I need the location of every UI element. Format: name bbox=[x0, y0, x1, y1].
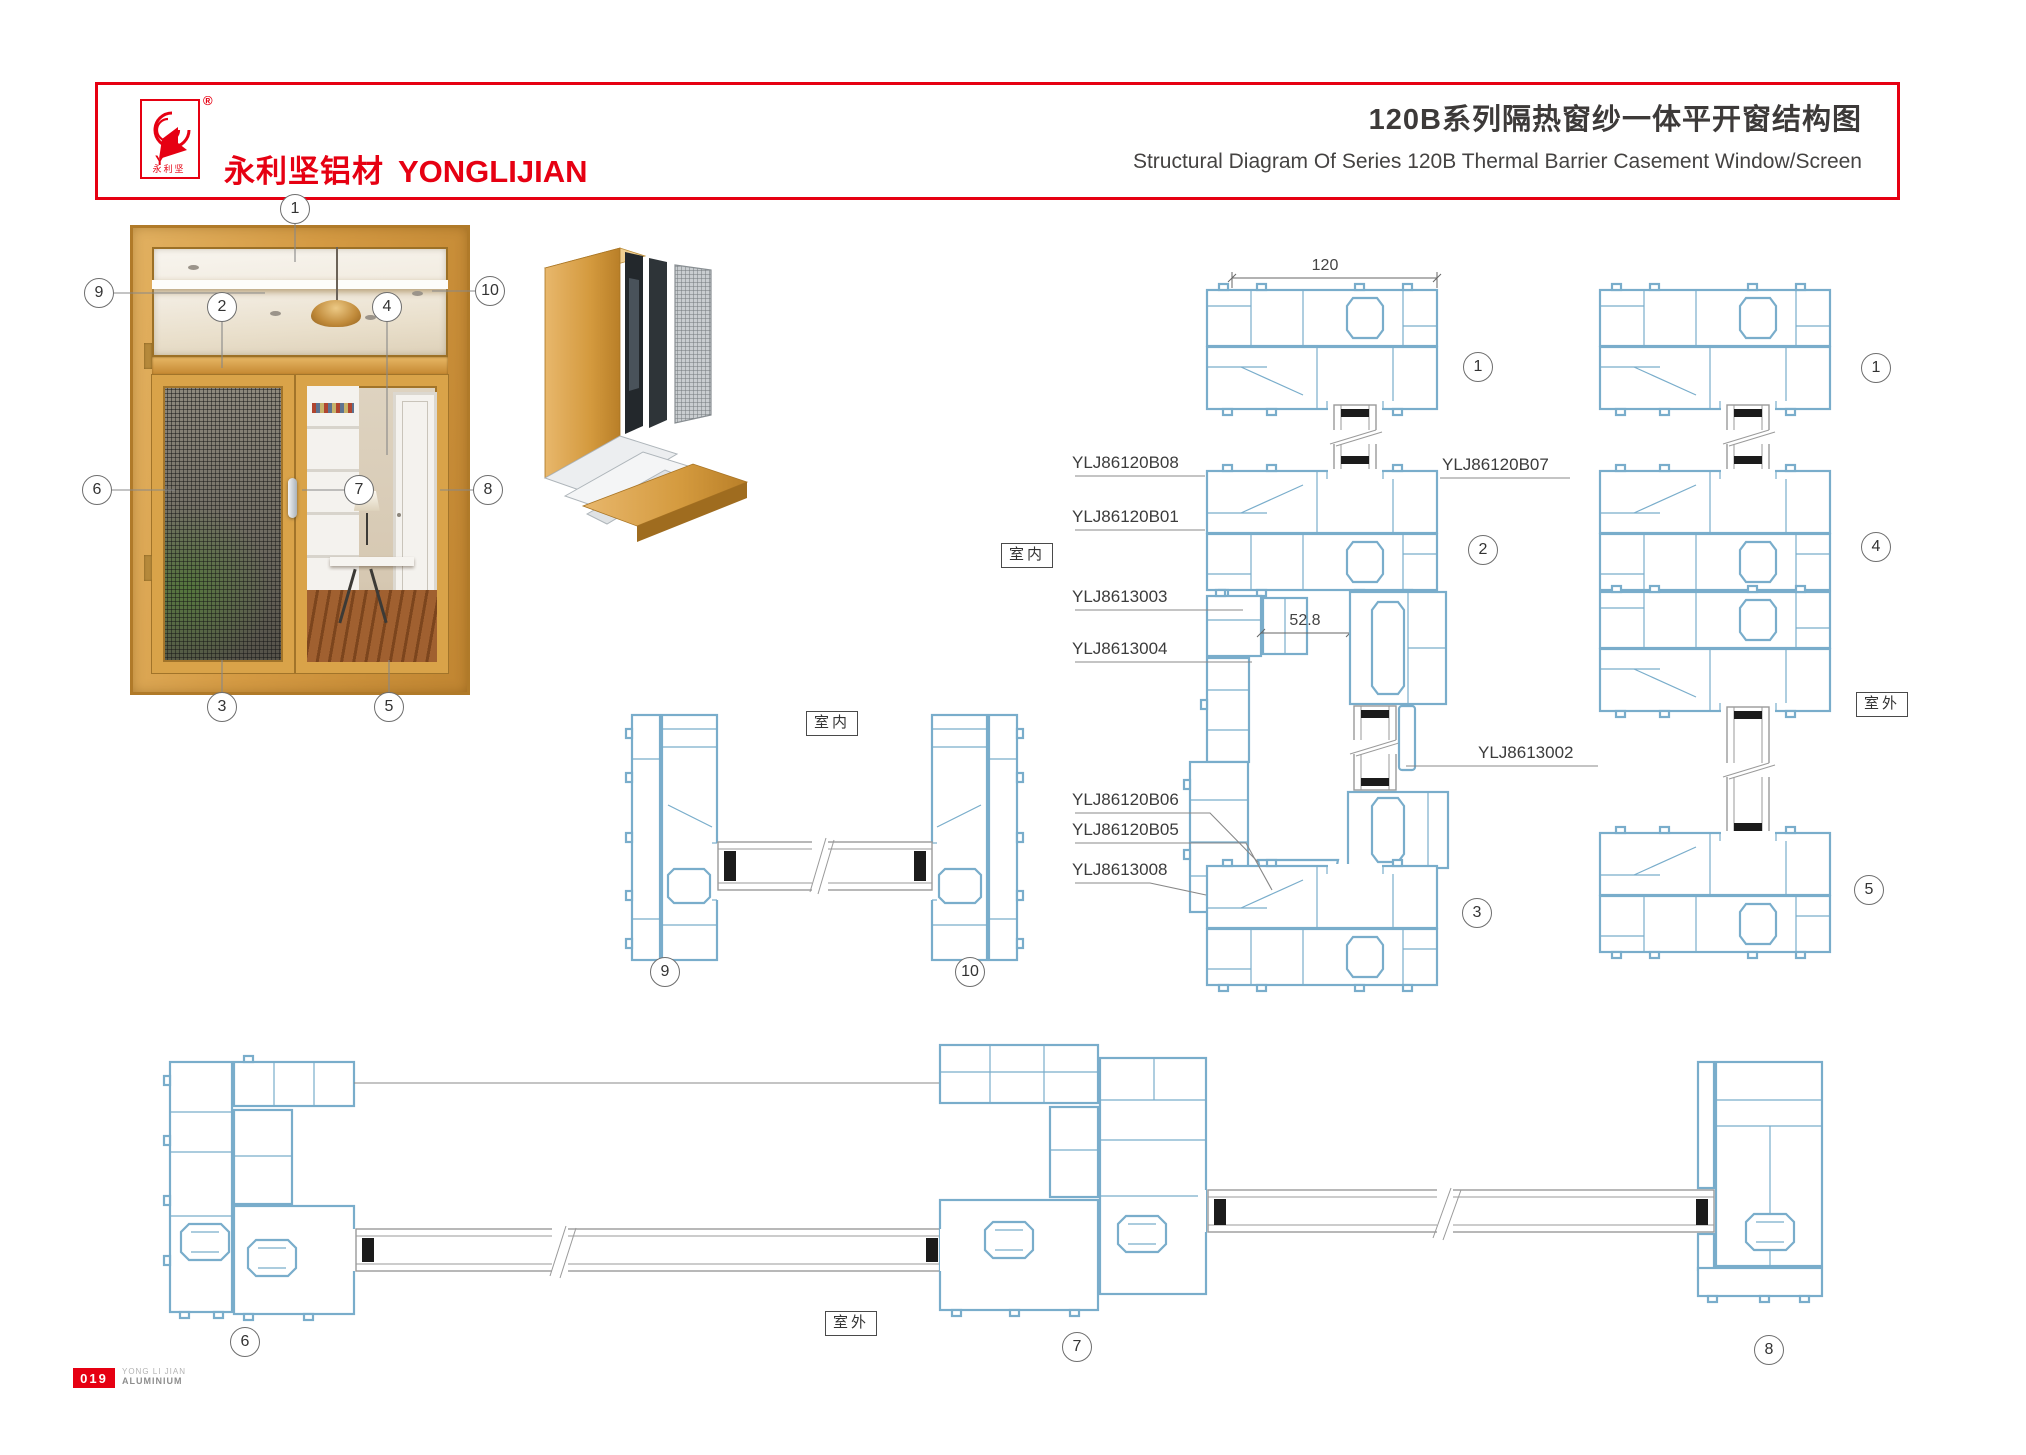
callout-circle: 8 bbox=[1754, 1335, 1784, 1365]
part-label: YLJ86120B01 bbox=[1072, 507, 1179, 527]
callout-circle: 1 bbox=[280, 194, 310, 224]
callout-circle: 9 bbox=[650, 957, 680, 987]
section-stack-middle bbox=[1075, 272, 1598, 991]
glass-unit bbox=[718, 838, 932, 894]
outdoor-label: 室外 bbox=[825, 1311, 877, 1336]
section-jamb-pair bbox=[626, 715, 1023, 960]
callout-circle: 5 bbox=[374, 692, 404, 722]
photo-callout-leaders bbox=[112, 224, 476, 693]
callout-circle: 9 bbox=[84, 278, 114, 308]
part-label: YLJ86120B05 bbox=[1072, 820, 1179, 840]
outdoor-label: 室外 bbox=[1856, 692, 1908, 717]
callout-circle: 7 bbox=[1062, 1332, 1092, 1362]
dimension-mullion-gap: 52.8 bbox=[1280, 612, 1330, 630]
glass-unit bbox=[1723, 707, 1775, 835]
glass-unit bbox=[1723, 405, 1775, 470]
part-label: YLJ8613008 bbox=[1072, 860, 1167, 880]
section-stack-right bbox=[1600, 284, 1830, 958]
callout-circle: 3 bbox=[1462, 898, 1492, 928]
footer-brand-line1: YONG LI JIAN bbox=[122, 1367, 186, 1376]
callout-circle: 6 bbox=[230, 1327, 260, 1357]
part-label: YLJ86120B07 bbox=[1442, 455, 1549, 475]
callout-circle: 4 bbox=[372, 292, 402, 322]
indoor-label: 室内 bbox=[1001, 543, 1053, 568]
dimension-overall-width: 120 bbox=[1300, 257, 1350, 275]
glass-unit bbox=[1330, 405, 1382, 470]
footer-brand-line2: ALUMINIUM bbox=[122, 1376, 183, 1386]
callout-circle: 8 bbox=[473, 475, 503, 505]
catalog-page: Y ® 永利坚 永利坚铝材YONGLIJIAN 120B系列隔热窗纱一体平开窗结… bbox=[0, 0, 2026, 1455]
callout-circle: 2 bbox=[207, 292, 237, 322]
part-label: YLJ86120B06 bbox=[1072, 790, 1179, 810]
callout-circle: 5 bbox=[1854, 875, 1884, 905]
callout-circle: 6 bbox=[82, 475, 112, 505]
profile-3d-render bbox=[545, 248, 747, 542]
section-bottom-row bbox=[164, 1045, 1822, 1320]
glass-unit bbox=[356, 1225, 940, 1278]
part-label: YLJ8613004 bbox=[1072, 639, 1167, 659]
callout-circle: 3 bbox=[207, 692, 237, 722]
part-label: YLJ8613003 bbox=[1072, 587, 1167, 607]
part-label: YLJ86120B08 bbox=[1072, 453, 1179, 473]
callout-circle: 4 bbox=[1861, 532, 1891, 562]
glass-unit bbox=[1350, 706, 1402, 790]
callout-circle: 1 bbox=[1861, 353, 1891, 383]
glass-unit bbox=[1208, 1186, 1714, 1240]
callout-circle: 10 bbox=[475, 276, 505, 306]
callout-circle: 1 bbox=[1463, 352, 1493, 382]
callout-circle: 7 bbox=[344, 475, 374, 505]
part-label: YLJ8613002 bbox=[1478, 743, 1573, 763]
page-number-badge: 019 bbox=[73, 1368, 115, 1388]
callout-circle: 2 bbox=[1468, 535, 1498, 565]
indoor-label: 室内 bbox=[806, 711, 858, 736]
callout-circle: 10 bbox=[955, 957, 985, 987]
